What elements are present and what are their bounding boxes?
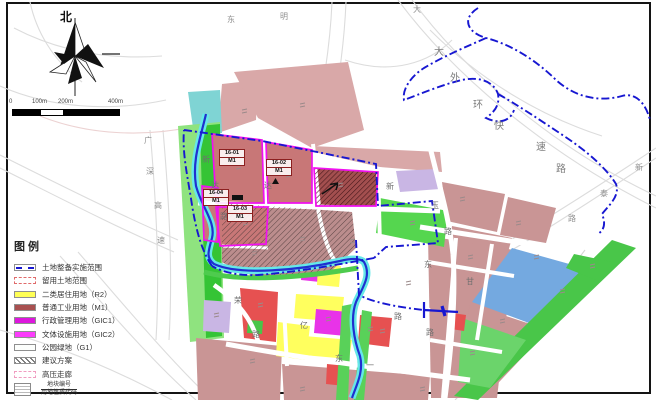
legend-swatch-residential-r2 xyxy=(14,291,36,298)
legend-item-industrial-m1: 普通工业用地（M1） xyxy=(14,301,146,314)
road-label: 大 xyxy=(434,48,444,58)
road-label: 路 xyxy=(394,313,402,321)
legend-panel: 图例 土地整备实施范围 留用土地范围 二类居住用地（R2） 普通工业用地（M1）… xyxy=(14,238,146,399)
scale-track xyxy=(12,109,120,116)
road-label: 速 xyxy=(157,237,165,245)
road-label: 东 xyxy=(424,261,432,269)
road-label: 荣 xyxy=(234,297,242,305)
road-label: 泰 xyxy=(600,190,608,198)
legend-item-hv-corridor: 高压走廊 xyxy=(14,367,146,380)
scale-label: 200m xyxy=(58,99,73,105)
scale-label: 0 xyxy=(9,99,12,105)
legend-item-park-g1: 公园绿地（G1） xyxy=(14,341,146,354)
plot-label-16-02: 16-02M1 xyxy=(266,159,292,176)
road-label: 深 xyxy=(146,168,154,176)
legend-swatch-implementation-scope xyxy=(14,264,36,271)
legend-item-culture-gic2: 文体设施用地（GIC2） xyxy=(14,327,146,340)
road-label: 高 xyxy=(154,202,162,210)
road-label: 路 xyxy=(426,329,434,337)
scale-label: 400m xyxy=(108,99,123,105)
road-label: 外 xyxy=(450,74,460,84)
road-label: 东 xyxy=(335,355,343,363)
scale-label: 100m xyxy=(32,99,47,105)
road-label: 亿 xyxy=(300,322,308,330)
planning-map-screenshot: 北 0 100m 200m 400m 东 明 大 大 外 环 快 速 路 新 泰… xyxy=(0,0,656,400)
legend-item-reserved-land: 留用土地范围 xyxy=(14,274,146,287)
legend-swatch-park-g1 xyxy=(14,344,36,351)
road-label: 新 xyxy=(202,156,210,164)
road-label: 路 xyxy=(444,228,452,236)
road-label: 新 xyxy=(635,164,643,172)
north-label: 北 xyxy=(60,8,72,25)
compass-star xyxy=(28,8,138,108)
road-label: 快 xyxy=(494,122,504,132)
road-label: 明 xyxy=(280,13,288,21)
compass-rose: 北 xyxy=(28,8,138,108)
road-label: 一 xyxy=(366,362,374,370)
road-label: 大 xyxy=(413,6,421,14)
legend-plot-code-note: 地块编号 用地性质代码 xyxy=(14,381,146,399)
road-label: 达 xyxy=(264,182,272,190)
legend-item-admin-gic1: 行政管理用地（GIC1） xyxy=(14,314,146,327)
scale-bar: 0 100m 200m 400m xyxy=(8,99,126,121)
road-label: 东 xyxy=(227,16,235,24)
plot-code-note-top: 地块编号 xyxy=(41,382,77,391)
legend-item-residential-r2: 二类居住用地（R2） xyxy=(14,288,146,301)
legend-item-implementation-scope: 土地整备实施范围 xyxy=(14,261,146,274)
road-label: 路 xyxy=(252,331,260,339)
road-label: 玉 xyxy=(431,202,439,210)
road-label: 路 xyxy=(556,165,566,175)
legend-plot-code-symbol xyxy=(14,383,31,396)
legend-item-suggestion-plan: 建议方案 xyxy=(14,354,146,367)
legend-swatch-industrial-m1 xyxy=(14,304,36,311)
road-label: 甘 xyxy=(466,278,474,286)
road-label: 广 xyxy=(144,137,152,145)
plot-label-16-01: 16-01M1 xyxy=(219,149,245,166)
legend-swatch-suggestion-plan xyxy=(14,357,36,364)
road-label: 环 xyxy=(473,101,483,111)
road-label: 速 xyxy=(536,143,546,153)
legend-title: 图例 xyxy=(14,238,146,254)
plot-code-note-bottom: 用地性质代码 xyxy=(41,390,77,398)
road-label: 路 xyxy=(568,215,576,223)
legend-swatch-hv-corridor xyxy=(14,371,36,378)
legend-swatch-culture-gic2 xyxy=(14,331,36,338)
legend-swatch-reserved-land xyxy=(14,277,36,284)
road-label: 新 xyxy=(386,183,394,191)
plot-label-16-03: 16-03M1 xyxy=(227,205,253,222)
plot-label-16-04: 16-04M1 xyxy=(203,189,229,206)
legend-swatch-admin-gic1 xyxy=(14,317,36,324)
